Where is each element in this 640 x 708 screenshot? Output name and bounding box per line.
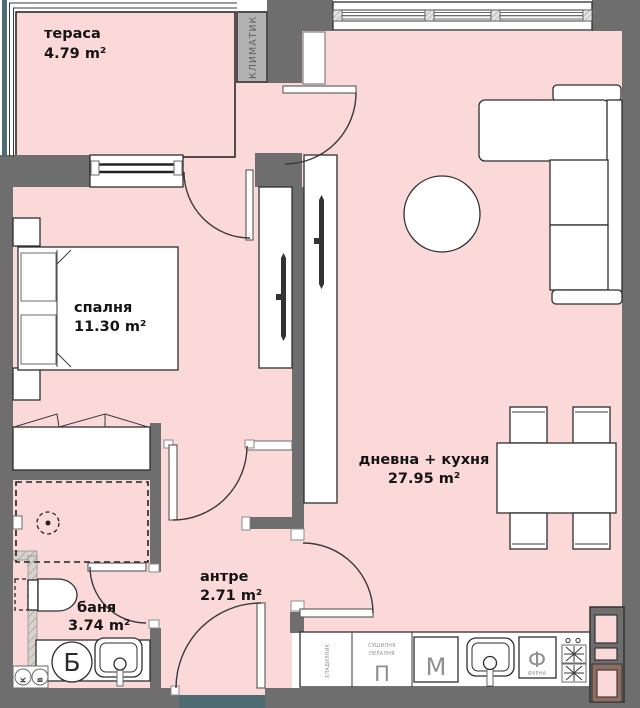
living-tv-mount-icon [314, 238, 319, 244]
sofa-backrest [607, 100, 622, 291]
sofa-seat [550, 160, 608, 225]
wall-niche-right [267, 0, 302, 83]
living-room-windows [333, 2, 592, 30]
round-table [404, 176, 480, 252]
cooktop-icon [562, 638, 586, 682]
entry-door-leaf [257, 603, 265, 688]
wall-terrace-bedroom [0, 155, 90, 187]
terrace-living-door-leaf [283, 86, 356, 93]
living-kitchen-area: 27.95 m² [388, 471, 460, 487]
doorway-floor [292, 529, 304, 612]
sofa-seat [550, 225, 608, 290]
window-mullion [491, 10, 500, 21]
riser-hot-letter: В [37, 677, 45, 682]
wall-top-left-of-window [302, 0, 333, 31]
window-mullion [333, 10, 342, 21]
bedroom-tv-console [259, 187, 292, 368]
wall-bottom-left [0, 688, 179, 708]
nightstand [13, 218, 40, 246]
terrace-bedroom-door-leaf [246, 170, 253, 240]
shower-head [13, 516, 22, 529]
wardrobe [13, 427, 150, 470]
wall-bath-right-upper [150, 423, 161, 572]
oven-letter: Ф [528, 648, 546, 672]
bathroom-name: баня [77, 600, 116, 616]
pillow [21, 315, 56, 364]
ac-label: КЛИМАТИК [248, 16, 259, 79]
boiler-letter: Б [63, 648, 80, 677]
washer-label: ПЕРАЛНЯ [369, 651, 394, 657]
hall-living-door-leaf [300, 609, 373, 617]
ac-unit: КЛИМАТИК [237, 12, 267, 82]
wall-bath-top [13, 470, 152, 480]
dishwasher-letter: М [426, 653, 447, 681]
wall-bedroom-top-right [255, 153, 302, 187]
hallway-area: 2.71 m² [200, 588, 262, 604]
wall-hall-stub [247, 517, 304, 529]
terrace-area: 4.79 m² [44, 46, 106, 62]
sofa-armrest [552, 290, 622, 304]
oven-label: ФУРНА [528, 671, 547, 677]
window-mullion [425, 10, 434, 21]
living-kitchen-name: дневна + кухня [359, 452, 490, 468]
bedroom-tv-mount-icon [276, 294, 281, 300]
bedroom-tv-icon [281, 253, 286, 341]
riser-cold-letter: К [20, 677, 28, 683]
wall-mid [292, 187, 304, 529]
wall-right [622, 0, 640, 708]
sofa-armrest [553, 85, 621, 101]
toilet-tank [28, 580, 38, 610]
duct-shaft [590, 607, 624, 702]
dryer-label: СУШИЛНЯ [368, 643, 396, 649]
wall-left [0, 155, 13, 708]
floor-plan: КЛИМАТИК [0, 0, 640, 708]
bath-faucet-icon [114, 658, 126, 670]
wall-bath-right-lower [150, 628, 161, 690]
wall-bottom-right [265, 688, 640, 708]
window-mullion [583, 10, 592, 21]
living-tv-icon [319, 195, 324, 289]
faucet-stem [487, 668, 493, 686]
bathroom-door-leaf [88, 563, 146, 571]
pillow [21, 253, 56, 301]
faucet-icon [484, 657, 497, 670]
nightstand [13, 368, 40, 400]
bath-faucet-stem [117, 669, 123, 686]
fridge-label: ХЛАДИЛНИК [325, 643, 331, 678]
shower-drain-dot [46, 521, 51, 526]
hallway-name: антре [200, 569, 249, 585]
washer-letter: П [374, 662, 390, 686]
risers: К В [13, 666, 48, 688]
bathroom-area: 3.74 m² [68, 618, 130, 634]
terrace-passage-floor [235, 83, 302, 157]
sofa-chaise [479, 100, 609, 161]
dining-table [497, 443, 616, 513]
entry-threshold [179, 695, 265, 708]
bedroom-area: 11.30 m² [74, 319, 146, 335]
bedroom-name: спалня [74, 300, 132, 316]
bedroom-hall-door-leaf [169, 445, 177, 520]
toilet-bowl [38, 579, 77, 611]
terrace-name: тераса [44, 26, 101, 42]
bedroom-window [90, 155, 183, 187]
facade-strip [2, 0, 7, 157]
tall-cabinet [303, 32, 325, 84]
